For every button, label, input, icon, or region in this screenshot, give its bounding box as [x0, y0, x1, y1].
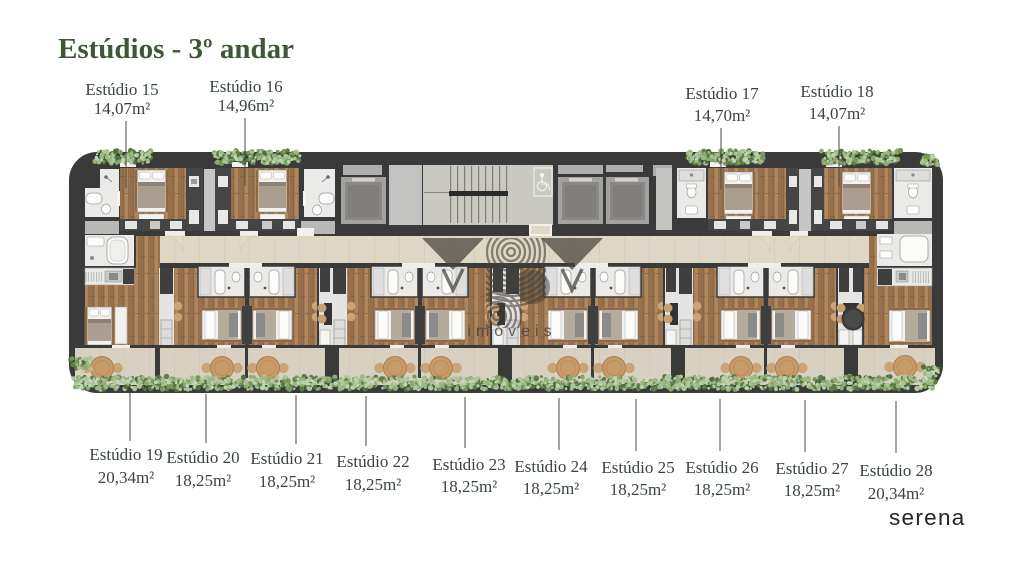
- svg-text:Estúdio 16: Estúdio 16: [209, 77, 282, 96]
- svg-text:Estúdio 27: Estúdio 27: [775, 459, 849, 478]
- svg-text:Estúdio 22: Estúdio 22: [336, 452, 409, 471]
- svg-text:14,07m²: 14,07m²: [94, 99, 151, 118]
- svg-text:18,25m²: 18,25m²: [345, 475, 402, 494]
- svg-text:imóveis: imóveis: [467, 323, 556, 340]
- svg-text:18,25m²: 18,25m²: [694, 480, 751, 499]
- svg-text:18,25m²: 18,25m²: [784, 481, 841, 500]
- svg-text:Estúdios - 3º andar: Estúdios - 3º andar: [58, 33, 294, 65]
- svg-text:Estúdio 25: Estúdio 25: [601, 458, 674, 477]
- svg-text:14,07m²: 14,07m²: [809, 104, 866, 123]
- svg-text:Estúdio 28: Estúdio 28: [859, 461, 932, 480]
- svg-text:Estúdio 24: Estúdio 24: [514, 457, 588, 476]
- svg-text:Estúdio 17: Estúdio 17: [685, 84, 759, 103]
- svg-text:Estúdio 26: Estúdio 26: [685, 458, 758, 477]
- svg-text:Estúdio 20: Estúdio 20: [166, 448, 239, 467]
- svg-text:18,25m²: 18,25m²: [610, 480, 667, 499]
- svg-text:14,96m²: 14,96m²: [218, 96, 275, 115]
- svg-text:20,34m²: 20,34m²: [868, 484, 925, 503]
- svg-text:serena: serena: [889, 505, 966, 530]
- svg-text:Estúdio 19: Estúdio 19: [89, 445, 162, 464]
- svg-text:18,25m²: 18,25m²: [175, 471, 232, 490]
- svg-text:Estúdio 23: Estúdio 23: [432, 455, 505, 474]
- svg-text:20,34m²: 20,34m²: [98, 468, 155, 487]
- svg-text:18,25m²: 18,25m²: [259, 472, 316, 491]
- svg-text:14,70m²: 14,70m²: [694, 106, 751, 125]
- svg-text:Estúdio 18: Estúdio 18: [800, 82, 873, 101]
- svg-text:Estúdio 15: Estúdio 15: [85, 80, 158, 99]
- svg-text:18,25m²: 18,25m²: [523, 479, 580, 498]
- svg-text:18,25m²: 18,25m²: [441, 477, 498, 496]
- svg-text:Estúdio 21: Estúdio 21: [250, 449, 323, 468]
